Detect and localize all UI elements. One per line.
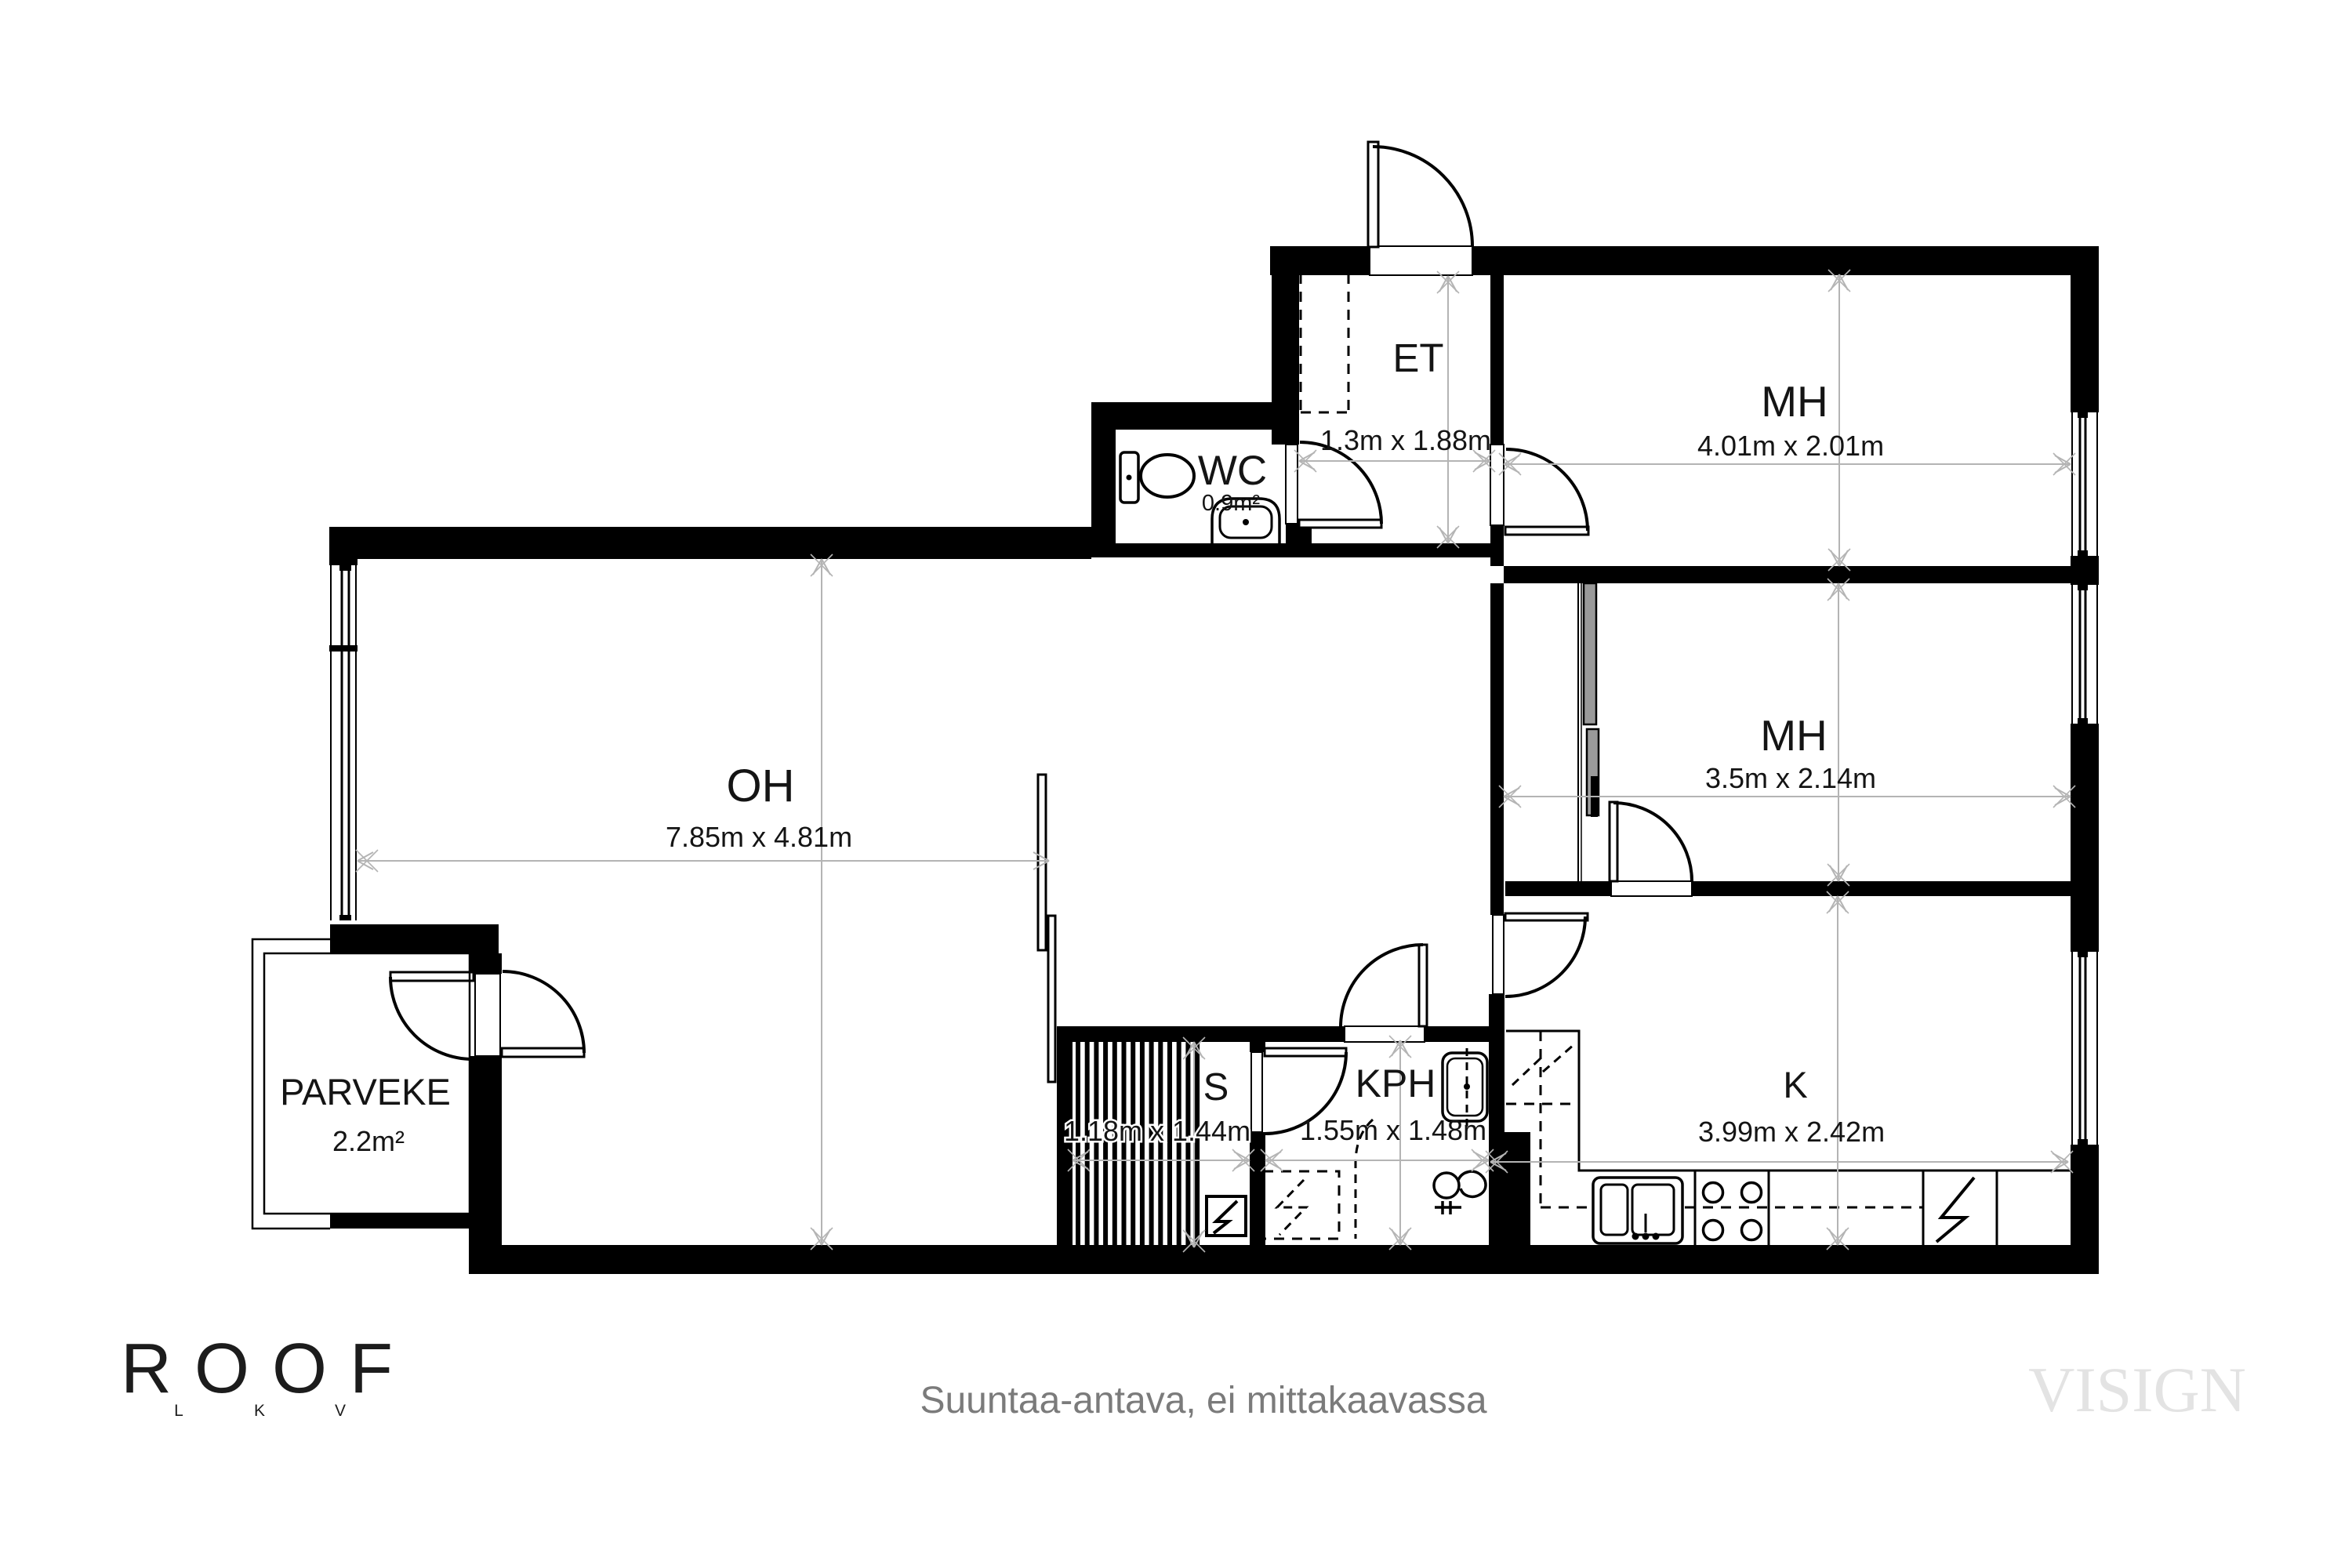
svg-text:1.55m x 1.48m: 1.55m x 1.48m	[1300, 1114, 1486, 1146]
svg-text:K: K	[254, 1402, 265, 1420]
svg-text:ET: ET	[1392, 336, 1443, 380]
svg-text:MH: MH	[1761, 377, 1828, 426]
svg-text:7.85m x 4.81m: 7.85m x 4.81m	[666, 821, 852, 853]
svg-text:4.01m x 2.01m: 4.01m x 2.01m	[1697, 430, 1884, 462]
svg-text:OH: OH	[727, 760, 795, 811]
svg-text:K: K	[1783, 1064, 1807, 1105]
svg-text:L: L	[174, 1402, 183, 1420]
svg-text:MH: MH	[1760, 711, 1828, 760]
svg-text:3.99m x 2.42m: 3.99m x 2.42m	[1698, 1116, 1885, 1148]
svg-text:3.5m x 2.14m: 3.5m x 2.14m	[1705, 762, 1876, 794]
svg-text:0.9m²: 0.9m²	[1202, 491, 1260, 516]
svg-text:1.3m x 1.88m: 1.3m x 1.88m	[1320, 424, 1491, 456]
svg-text:ROOF: ROOF	[121, 1330, 416, 1408]
svg-text:KPH: KPH	[1356, 1062, 1436, 1105]
svg-text:PARVEKE: PARVEKE	[280, 1071, 451, 1112]
svg-text:2.2m²: 2.2m²	[332, 1125, 405, 1157]
svg-text:Suuntaa-antava, ei mittakaavas: Suuntaa-antava, ei mittakaavassa	[920, 1380, 1486, 1421]
svg-text:1.18m x 1.44m: 1.18m x 1.44m	[1064, 1115, 1250, 1147]
svg-text:S: S	[1203, 1066, 1229, 1109]
svg-text:VISIGN: VISIGN	[2028, 1354, 2246, 1425]
svg-text:V: V	[335, 1402, 346, 1420]
svg-text:WC: WC	[1198, 448, 1267, 494]
